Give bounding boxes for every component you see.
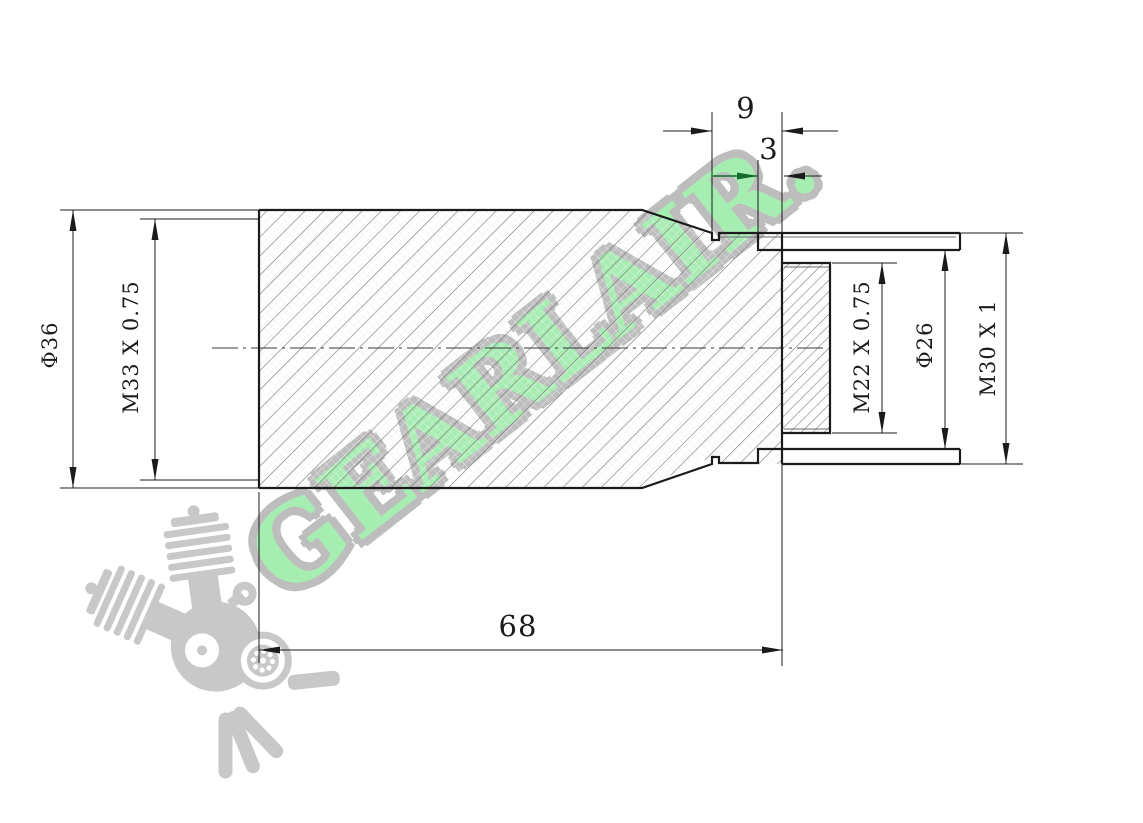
main-body-section [259,210,782,488]
label-right-thread: M30 X 1 [976,300,1000,397]
label-bore-diameter: Φ26 [913,322,937,369]
label-overall-length: 68 [499,609,538,643]
label-left-outer-diameter: Φ36 [38,322,62,369]
label-left-thread: M33 X 0.75 [119,280,143,413]
label-top-groove-width: 3 [759,132,778,166]
section-view-canvas [0,0,1143,823]
green-arrowhead [737,173,758,180]
technical-drawing-page: GEARLAIR. [0,0,1143,823]
label-top-length: 9 [736,91,755,125]
label-stub-thread: M22 X 0.75 [850,280,874,413]
